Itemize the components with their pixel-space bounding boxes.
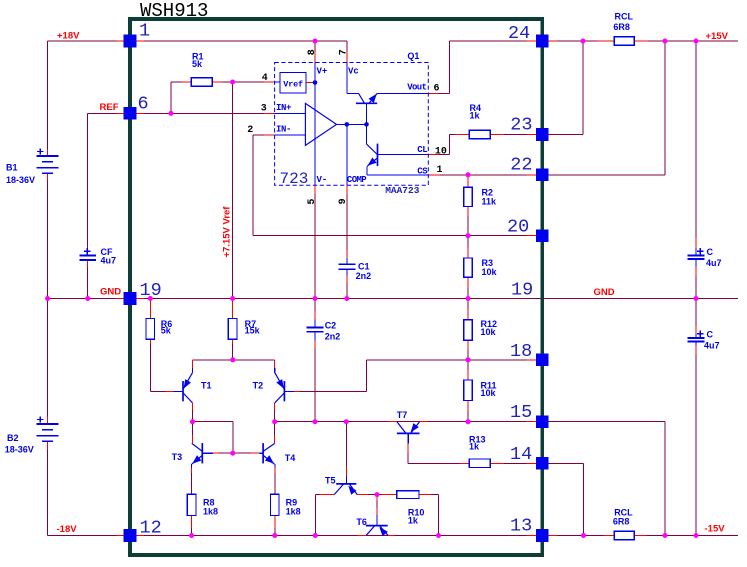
- svg-text:19: 19: [511, 280, 533, 301]
- svg-text:C: C: [707, 330, 714, 340]
- svg-text:5k: 5k: [192, 59, 203, 69]
- svg-text:15k: 15k: [245, 326, 261, 336]
- svg-text:2n2: 2n2: [356, 271, 372, 281]
- svg-text:MAA723: MAA723: [385, 185, 420, 196]
- svg-text:8: 8: [307, 49, 318, 55]
- svg-text:GND: GND: [100, 286, 121, 297]
- svg-text:20: 20: [507, 217, 529, 238]
- svg-text:10k: 10k: [481, 388, 497, 398]
- svg-text:1k8: 1k8: [203, 507, 218, 517]
- svg-text:4: 4: [262, 73, 268, 84]
- svg-text:1: 1: [437, 165, 443, 176]
- svg-text:IN+: IN+: [276, 103, 291, 113]
- svg-text:1k: 1k: [469, 442, 480, 452]
- svg-text:WSH913: WSH913: [140, 0, 208, 22]
- svg-text:18-36V: 18-36V: [6, 175, 35, 185]
- svg-text:1k: 1k: [408, 515, 419, 525]
- svg-text:T5: T5: [325, 475, 336, 485]
- svg-text:B1: B1: [6, 163, 18, 173]
- svg-text:723: 723: [280, 170, 309, 188]
- svg-text:4u7: 4u7: [101, 255, 117, 265]
- svg-text:11k: 11k: [482, 196, 498, 206]
- svg-text:T3: T3: [172, 452, 183, 462]
- svg-text:2: 2: [247, 125, 253, 136]
- svg-text:12: 12: [140, 518, 162, 539]
- svg-text:-15V: -15V: [705, 523, 726, 534]
- svg-text:23: 23: [510, 115, 532, 136]
- svg-text:IN-: IN-: [276, 125, 291, 135]
- svg-text:22: 22: [510, 155, 532, 176]
- svg-text:C2: C2: [325, 320, 337, 330]
- svg-text:CS: CS: [417, 167, 428, 177]
- svg-text:V-: V-: [317, 175, 328, 185]
- svg-text:+18V: +18V: [57, 30, 80, 41]
- svg-text:18-36V: 18-36V: [5, 445, 34, 455]
- svg-text:T2: T2: [253, 381, 264, 391]
- svg-text:Q1: Q1: [407, 51, 419, 61]
- svg-text:18: 18: [510, 341, 532, 362]
- svg-text:Vout: Vout: [407, 83, 426, 93]
- svg-text:5: 5: [307, 199, 318, 205]
- svg-text:6: 6: [138, 94, 149, 115]
- svg-text:+15V: +15V: [706, 31, 729, 42]
- svg-text:1: 1: [139, 21, 150, 42]
- svg-text:B2: B2: [7, 433, 19, 443]
- svg-text:C1: C1: [358, 261, 370, 271]
- svg-text:GND: GND: [594, 287, 615, 298]
- svg-text:C: C: [707, 247, 714, 257]
- svg-text:15: 15: [510, 402, 532, 423]
- svg-text:6R8: 6R8: [613, 22, 630, 32]
- svg-text:Vref: Vref: [283, 80, 303, 90]
- svg-text:T1: T1: [201, 381, 212, 391]
- svg-text:RCL: RCL: [615, 12, 634, 22]
- svg-text:14: 14: [510, 444, 532, 465]
- svg-text:CL: CL: [417, 145, 427, 155]
- svg-text:10k: 10k: [481, 327, 497, 337]
- svg-text:6: 6: [434, 84, 440, 95]
- svg-text:1k: 1k: [470, 111, 481, 121]
- svg-text:V+: V+: [317, 67, 328, 77]
- svg-text:COMP: COMP: [347, 175, 367, 185]
- svg-text:7: 7: [339, 49, 350, 55]
- svg-text:T7: T7: [397, 410, 408, 420]
- svg-text:10: 10: [435, 147, 447, 158]
- svg-text:24: 24: [508, 23, 530, 44]
- svg-text:1k8: 1k8: [286, 507, 301, 517]
- svg-text:3: 3: [261, 104, 267, 115]
- svg-text:T6: T6: [356, 517, 367, 527]
- svg-text:6R8: 6R8: [613, 516, 630, 526]
- svg-text:9: 9: [338, 198, 349, 204]
- svg-text:-18V: -18V: [57, 524, 78, 535]
- svg-text:+7.15V Vref: +7.15V Vref: [222, 206, 233, 258]
- svg-text:4u7: 4u7: [706, 258, 722, 268]
- svg-text:5k: 5k: [161, 326, 172, 336]
- svg-text:4u7: 4u7: [704, 340, 720, 350]
- svg-text:2n2: 2n2: [325, 332, 341, 342]
- svg-text:13: 13: [510, 516, 532, 537]
- svg-text:Vc: Vc: [348, 67, 359, 77]
- svg-text:10k: 10k: [482, 267, 498, 277]
- svg-text:T4: T4: [285, 453, 296, 463]
- svg-text:REF: REF: [100, 102, 119, 113]
